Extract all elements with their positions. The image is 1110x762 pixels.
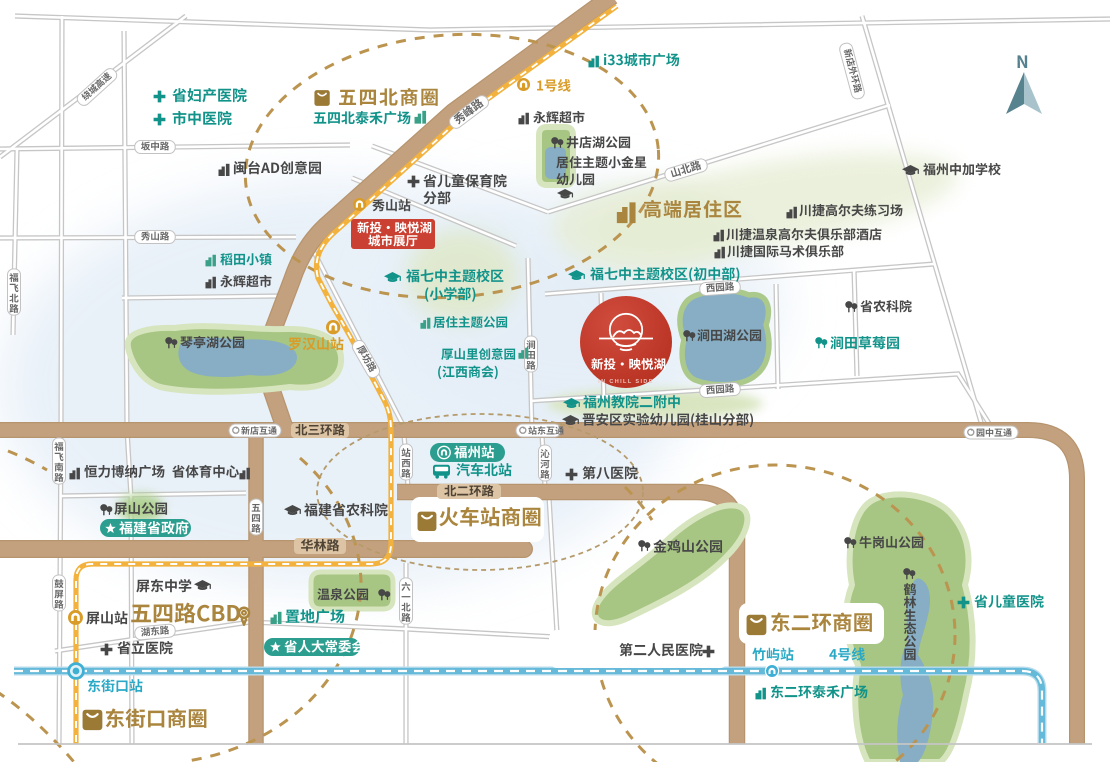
svg-text:IN CHILL SIDE: IN CHILL SIDE <box>598 379 654 385</box>
